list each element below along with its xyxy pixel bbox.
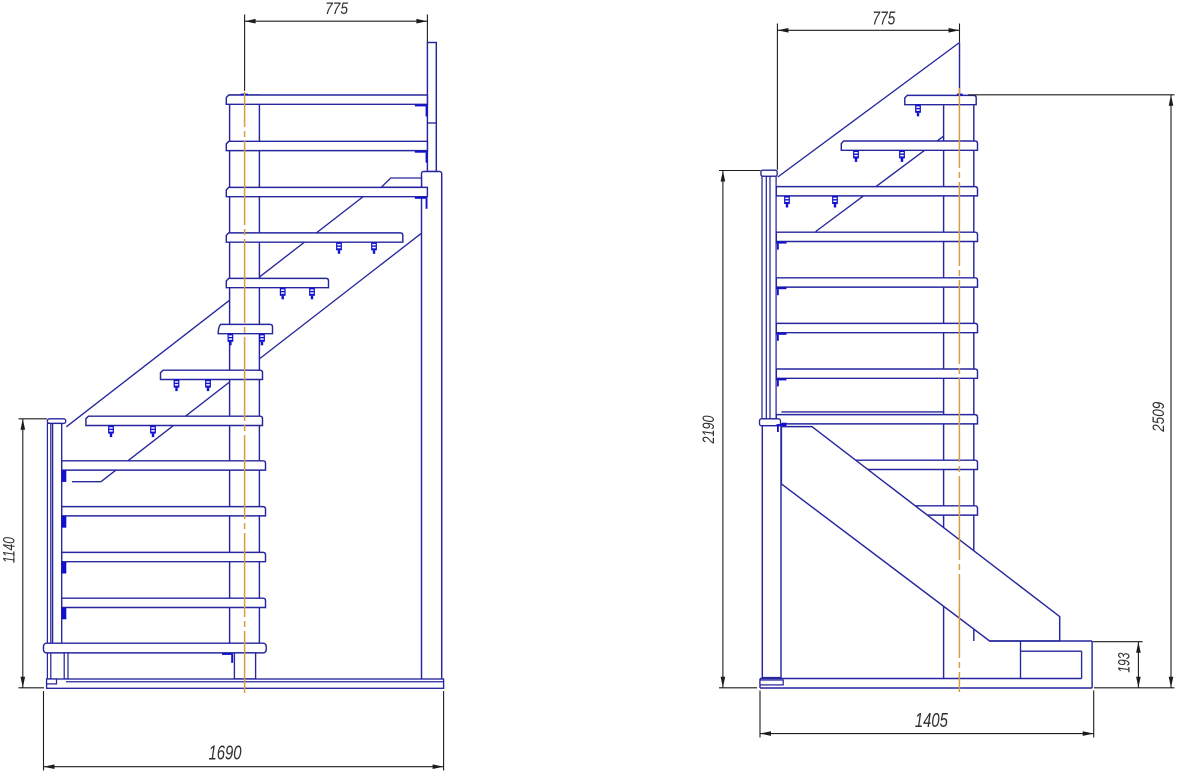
svg-text:775: 775: [325, 0, 348, 18]
svg-text:1405: 1405: [915, 710, 949, 732]
svg-text:2509: 2509: [1149, 401, 1168, 432]
svg-text:193: 193: [1115, 652, 1134, 672]
svg-text:1690: 1690: [209, 743, 242, 765]
svg-text:775: 775: [872, 9, 896, 29]
svg-text:1140: 1140: [0, 537, 19, 563]
svg-text:2190: 2190: [699, 415, 718, 444]
